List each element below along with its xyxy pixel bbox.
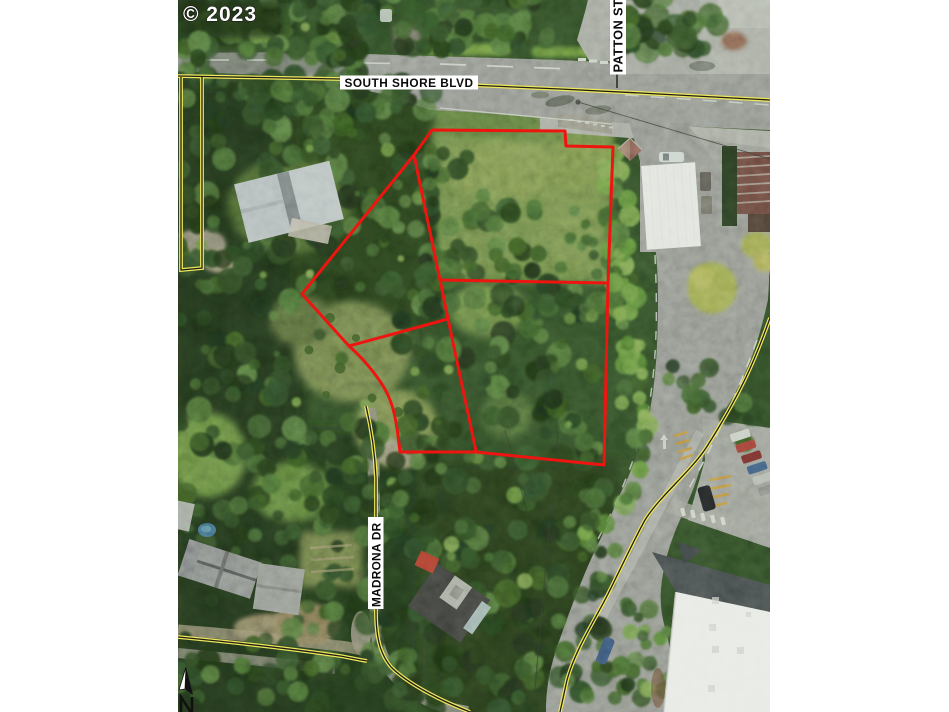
svg-text:MADRONA DR: MADRONA DR: [370, 522, 384, 607]
svg-text:PATTON ST: PATTON ST: [611, 0, 626, 73]
svg-text:© 2023: © 2023: [183, 3, 257, 26]
svg-text:SOUTH SHORE BLVD: SOUTH SHORE BLVD: [344, 76, 473, 90]
